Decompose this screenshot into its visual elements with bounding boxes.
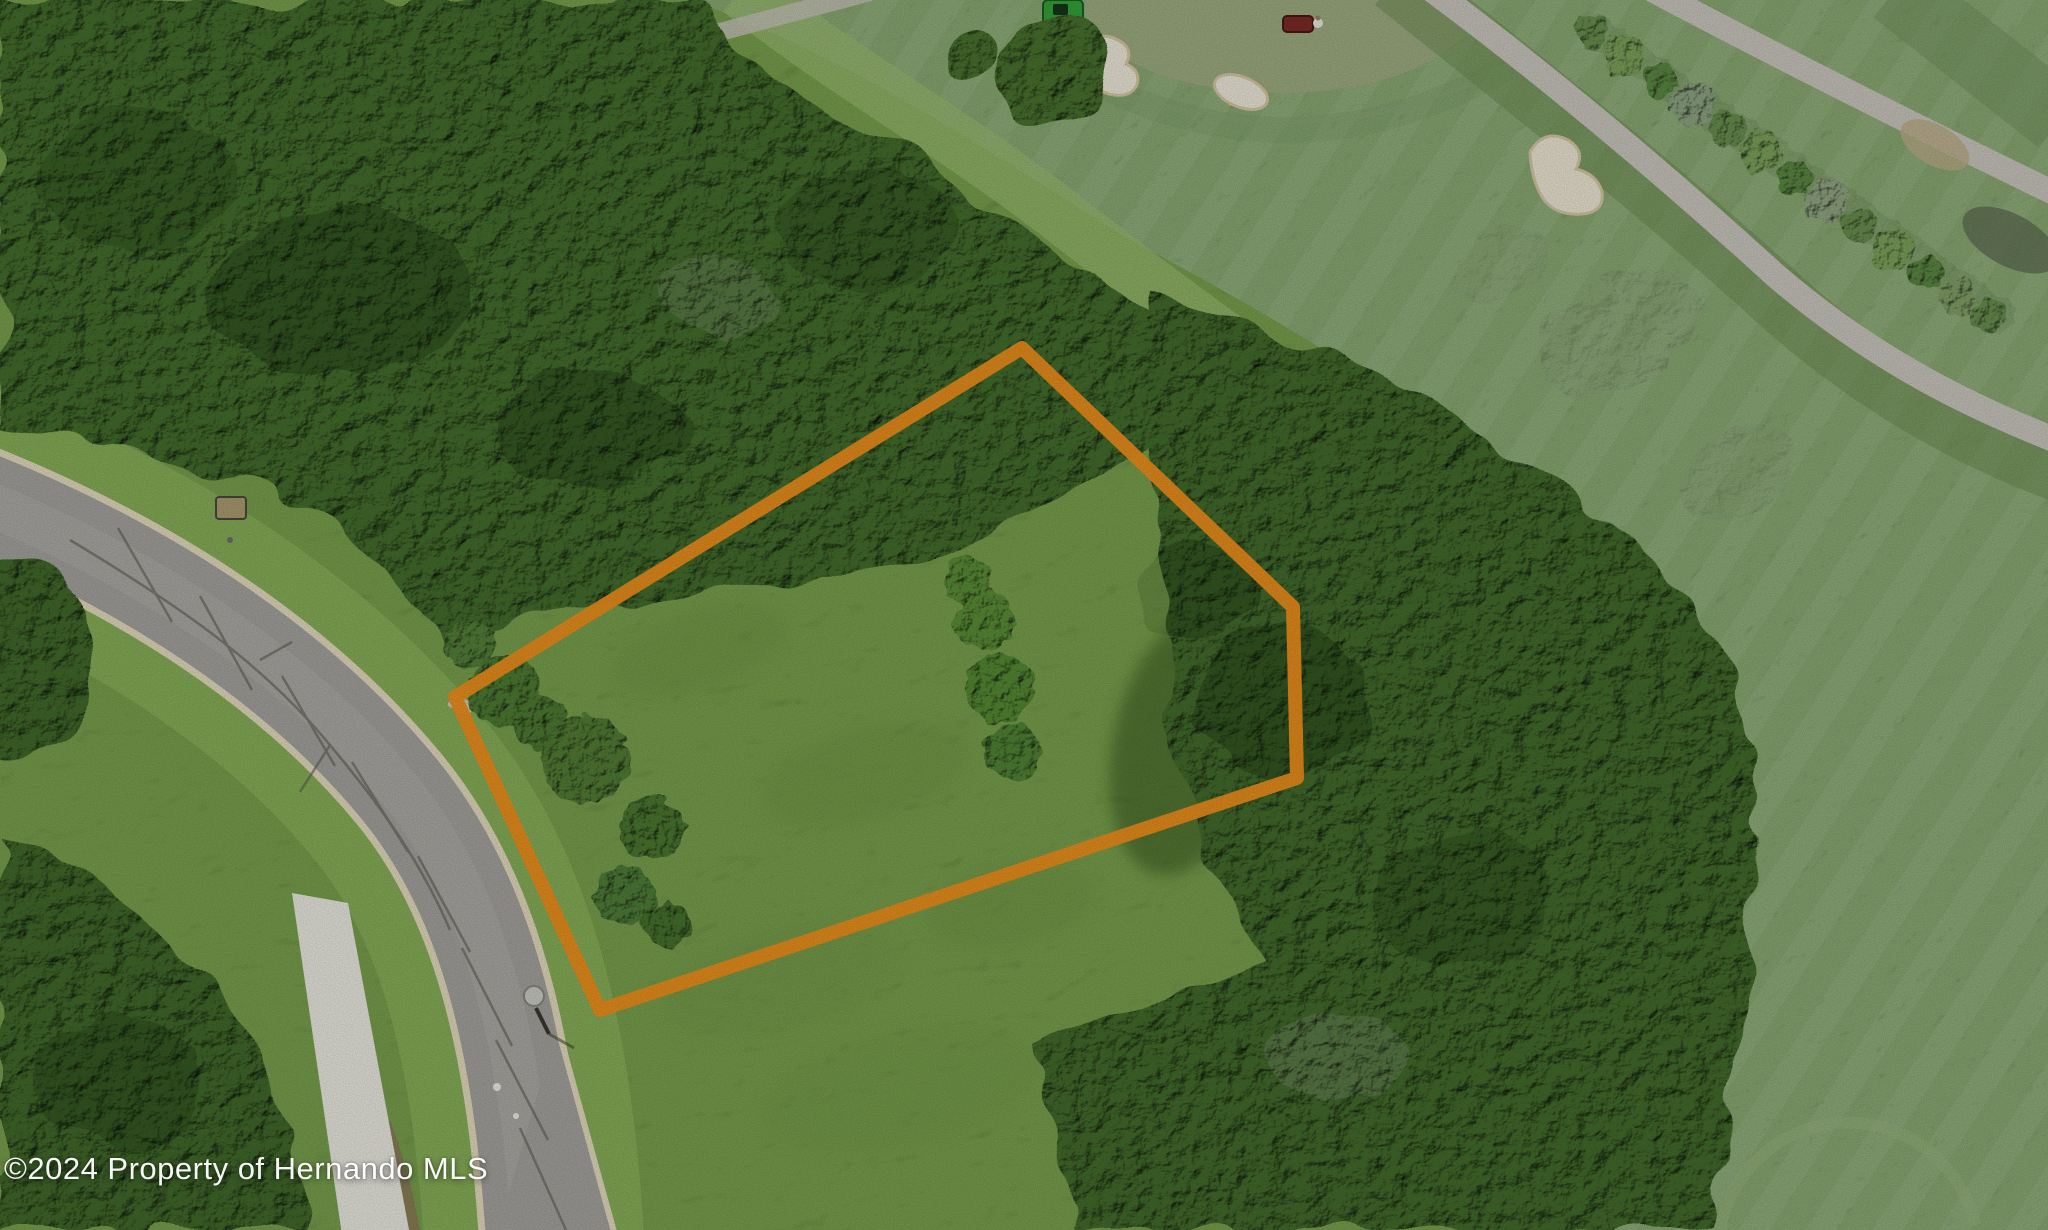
watermark: ©2024 Property of Hernando MLS — [4, 1151, 488, 1187]
aerial-photo: ©2024 Property of Hernando MLS — [0, 0, 2048, 1230]
aerial-scene — [0, 0, 2048, 1230]
photo-grain — [0, 0, 2048, 1230]
